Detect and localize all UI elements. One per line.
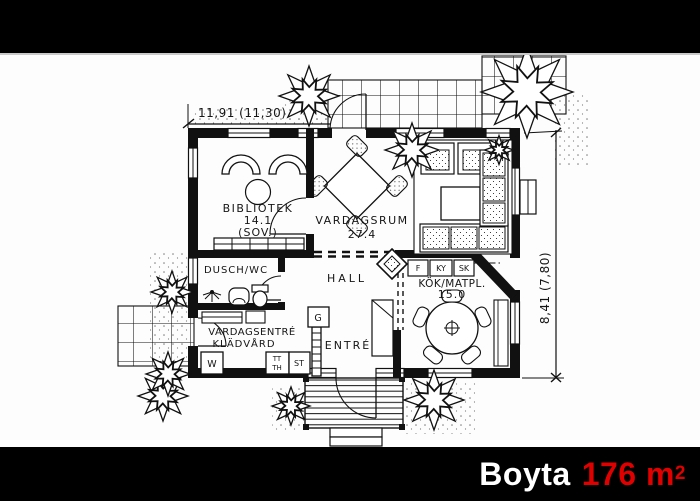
- bush-icon: [272, 387, 310, 425]
- room-area-kok: 15.0: [438, 288, 467, 301]
- flower-icon: [146, 352, 190, 396]
- deck-railing: [308, 369, 404, 378]
- side-table-icon: [246, 180, 271, 205]
- bush-icon: [404, 370, 464, 430]
- shelf-icon: [246, 311, 265, 323]
- floor-plan-drawing: 11,91 (11,30) 8,41 (7,80) BIBLIOTEK 14.1…: [0, 0, 700, 501]
- fixture-label-th: TH: [271, 364, 282, 372]
- floor-plan-page: 11,91 (11,30) 8,41 (7,80) BIBLIOTEK 14.1…: [0, 0, 700, 501]
- tree-icon: [481, 46, 573, 138]
- kitchen-table-icon: [411, 290, 492, 366]
- boyta-sup: 2: [675, 463, 686, 484]
- room-label-vardagsentre-1: VARDAGSENTRÉ: [208, 325, 295, 338]
- shower-icon: [203, 290, 221, 302]
- top-letterbox-bar: [0, 0, 700, 55]
- room-label-vardagsrum: VARDAGSRUM: [315, 214, 408, 227]
- armchair-icon: [222, 155, 260, 174]
- fixture-label-sk: SK: [459, 264, 470, 273]
- window-icon: [511, 302, 520, 344]
- room-label-dusch: DUSCH/WC: [204, 265, 268, 276]
- room-label-vardagsentre-2: KLÄDVÅRD: [212, 337, 275, 350]
- armchair-icon: [269, 155, 307, 174]
- bench-icon: [202, 312, 242, 323]
- entre-closet: [372, 300, 393, 356]
- boyta-caption: Boyta176 m2: [479, 456, 686, 493]
- window-icon: [189, 148, 198, 178]
- bottom-title-bar: Boyta176 m2: [0, 447, 700, 501]
- room-label-hall: HALL: [327, 272, 367, 285]
- sink-icon: [229, 288, 249, 305]
- boyta-value: 176 m2: [582, 456, 686, 492]
- plant-icon: [485, 136, 514, 165]
- hatched-wall: [312, 327, 321, 376]
- tree-icon: [279, 66, 339, 126]
- room-alt-bibliotek: (SOV.): [238, 226, 278, 239]
- coffee-table-icon: [441, 187, 480, 220]
- bookshelf-icon: [214, 238, 304, 250]
- window-icon: [189, 258, 198, 284]
- tree-icon: [385, 123, 439, 177]
- fixture-label-w: W: [207, 359, 217, 370]
- window-icon: [228, 129, 270, 138]
- fixture-label-tt: TT: [272, 355, 282, 363]
- toilet-icon: [252, 285, 268, 307]
- fixture-label-f: F: [416, 264, 421, 273]
- fixture-label-ky: KY: [436, 264, 446, 273]
- room-label-entre: ENTRÉ: [325, 339, 372, 352]
- flower-icon: [151, 271, 193, 313]
- fixture-label-st: ST: [294, 359, 304, 368]
- window-icon: [486, 129, 510, 138]
- boyta-label: Boyta: [479, 456, 570, 492]
- kitchen-counter-icon: [494, 300, 508, 366]
- dimension-height-label: 8,41 (7,80): [538, 252, 552, 324]
- room-area-vardagsrum: 27.4: [348, 228, 377, 241]
- fixture-label-g: G: [314, 313, 321, 324]
- dimension-width-label: 11,91 (11,30): [198, 106, 286, 120]
